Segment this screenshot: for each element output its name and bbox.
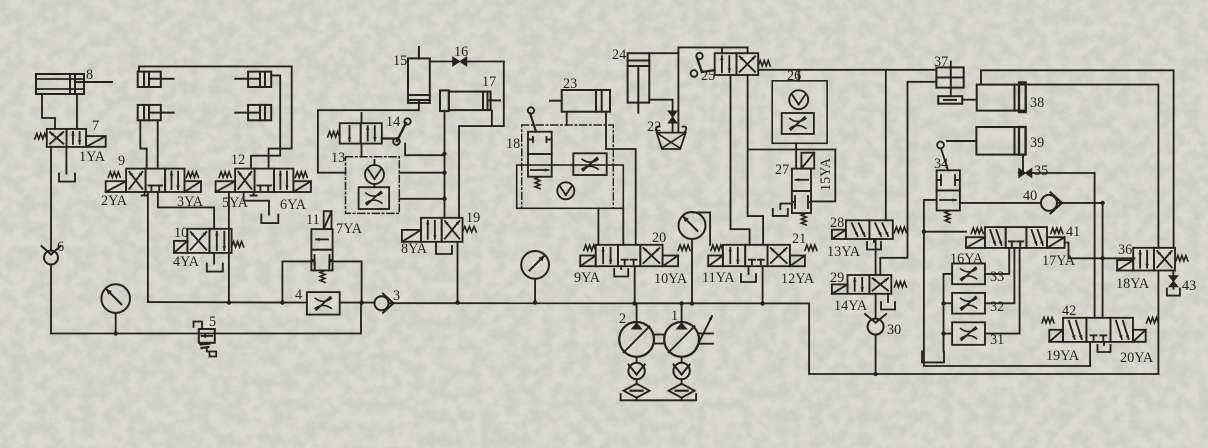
svg-text:28: 28 (830, 215, 844, 231)
svg-text:20: 20 (652, 230, 666, 246)
svg-text:2YA: 2YA (101, 193, 128, 209)
svg-text:39: 39 (1030, 135, 1044, 151)
svg-text:17: 17 (482, 74, 496, 90)
svg-text:14YA: 14YA (834, 298, 868, 314)
svg-text:33: 33 (990, 269, 1004, 285)
svg-text:6: 6 (57, 239, 64, 255)
svg-text:41: 41 (1066, 224, 1080, 240)
svg-text:12YA: 12YA (781, 271, 815, 287)
svg-text:10YA: 10YA (654, 271, 688, 287)
svg-text:25: 25 (701, 68, 715, 84)
svg-text:37: 37 (934, 54, 948, 70)
svg-text:14: 14 (386, 114, 400, 130)
svg-text:36: 36 (1118, 242, 1132, 258)
svg-text:9YA: 9YA (574, 270, 601, 286)
svg-text:19YA: 19YA (1046, 348, 1080, 364)
svg-text:10: 10 (174, 225, 188, 241)
svg-text:13YA: 13YA (827, 244, 861, 260)
svg-text:27: 27 (775, 162, 789, 178)
svg-text:11YA: 11YA (702, 270, 735, 286)
svg-text:29: 29 (830, 270, 844, 286)
svg-text:7YA: 7YA (336, 221, 363, 237)
svg-text:1: 1 (671, 308, 678, 324)
svg-text:40: 40 (1023, 188, 1037, 204)
svg-text:3: 3 (393, 288, 400, 304)
svg-text:17YA: 17YA (1042, 253, 1076, 269)
svg-text:6YA: 6YA (280, 197, 307, 213)
svg-text:11: 11 (306, 212, 320, 228)
svg-text:15: 15 (393, 53, 407, 69)
svg-text:22: 22 (647, 119, 661, 135)
svg-text:5YA: 5YA (222, 195, 249, 211)
svg-text:12: 12 (231, 152, 245, 168)
svg-text:16: 16 (454, 44, 468, 60)
svg-text:15YA: 15YA (818, 157, 834, 191)
svg-text:8: 8 (86, 67, 93, 83)
svg-text:42: 42 (1062, 303, 1076, 319)
svg-text:13: 13 (331, 150, 345, 166)
svg-text:5: 5 (209, 314, 216, 330)
svg-text:4YA: 4YA (173, 254, 200, 270)
svg-text:23: 23 (563, 76, 577, 92)
svg-text:32: 32 (990, 299, 1004, 315)
svg-text:20YA: 20YA (1120, 350, 1154, 366)
svg-text:34: 34 (934, 156, 948, 172)
svg-text:43: 43 (1182, 278, 1196, 294)
svg-text:19: 19 (466, 210, 480, 226)
svg-text:18: 18 (506, 136, 520, 152)
svg-text:38: 38 (1030, 95, 1044, 111)
svg-text:18YA: 18YA (1116, 276, 1150, 292)
svg-text:1YA: 1YA (79, 149, 106, 165)
svg-text:7: 7 (92, 118, 99, 134)
svg-text:30: 30 (887, 322, 901, 338)
svg-text:35: 35 (1034, 163, 1048, 179)
svg-text:21: 21 (792, 231, 806, 247)
svg-text:8YA: 8YA (401, 241, 428, 257)
svg-text:4: 4 (295, 287, 302, 303)
svg-text:16YA: 16YA (950, 251, 984, 267)
svg-text:24: 24 (612, 47, 626, 63)
svg-text:9: 9 (118, 153, 125, 169)
svg-text:2: 2 (619, 311, 626, 327)
